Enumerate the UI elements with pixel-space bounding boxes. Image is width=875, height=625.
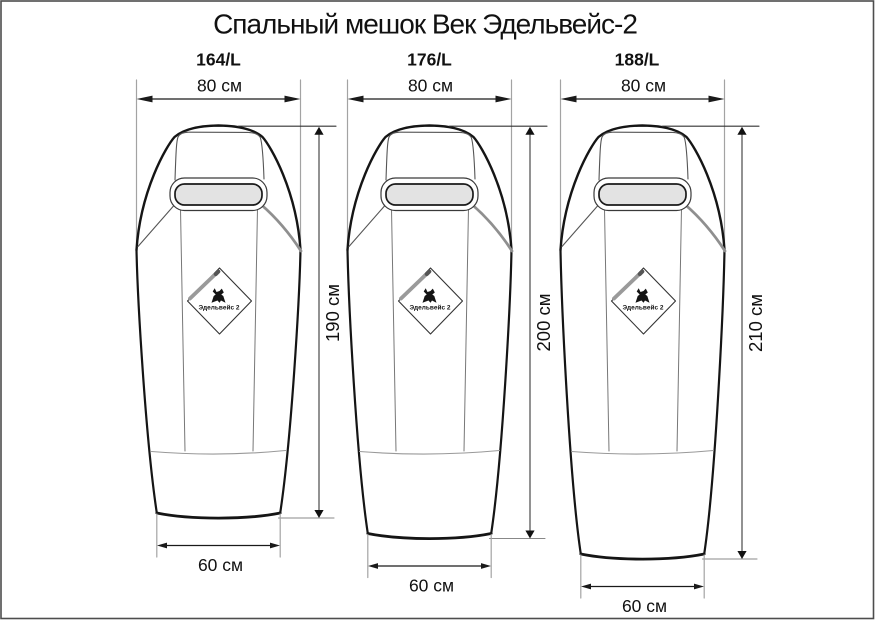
svg-text:60 см: 60 см [198,555,243,575]
svg-text:200 см: 200 см [533,294,554,352]
svg-text:Эдельвейс 2: Эдельвейс 2 [410,304,451,312]
svg-text:Эдельвейс 2: Эдельвейс 2 [623,304,664,312]
svg-text:80 см: 80 см [197,76,242,96]
svg-text:80 см: 80 см [408,76,453,96]
svg-text:190 см: 190 см [322,284,343,342]
svg-text:Эдельвейс 2: Эдельвейс 2 [199,304,240,312]
svg-text:Спальный мешок Век Эдельвейс-2: Спальный мешок Век Эдельвейс-2 [213,9,637,40]
svg-text:210 см: 210 см [745,294,766,352]
svg-text:60 см: 60 см [622,596,667,616]
svg-text:176/L: 176/L [407,50,452,70]
svg-text:188/L: 188/L [615,50,660,70]
svg-text:164/L: 164/L [196,50,241,70]
svg-text:60 см: 60 см [409,576,454,596]
svg-text:80 см: 80 см [621,76,666,96]
